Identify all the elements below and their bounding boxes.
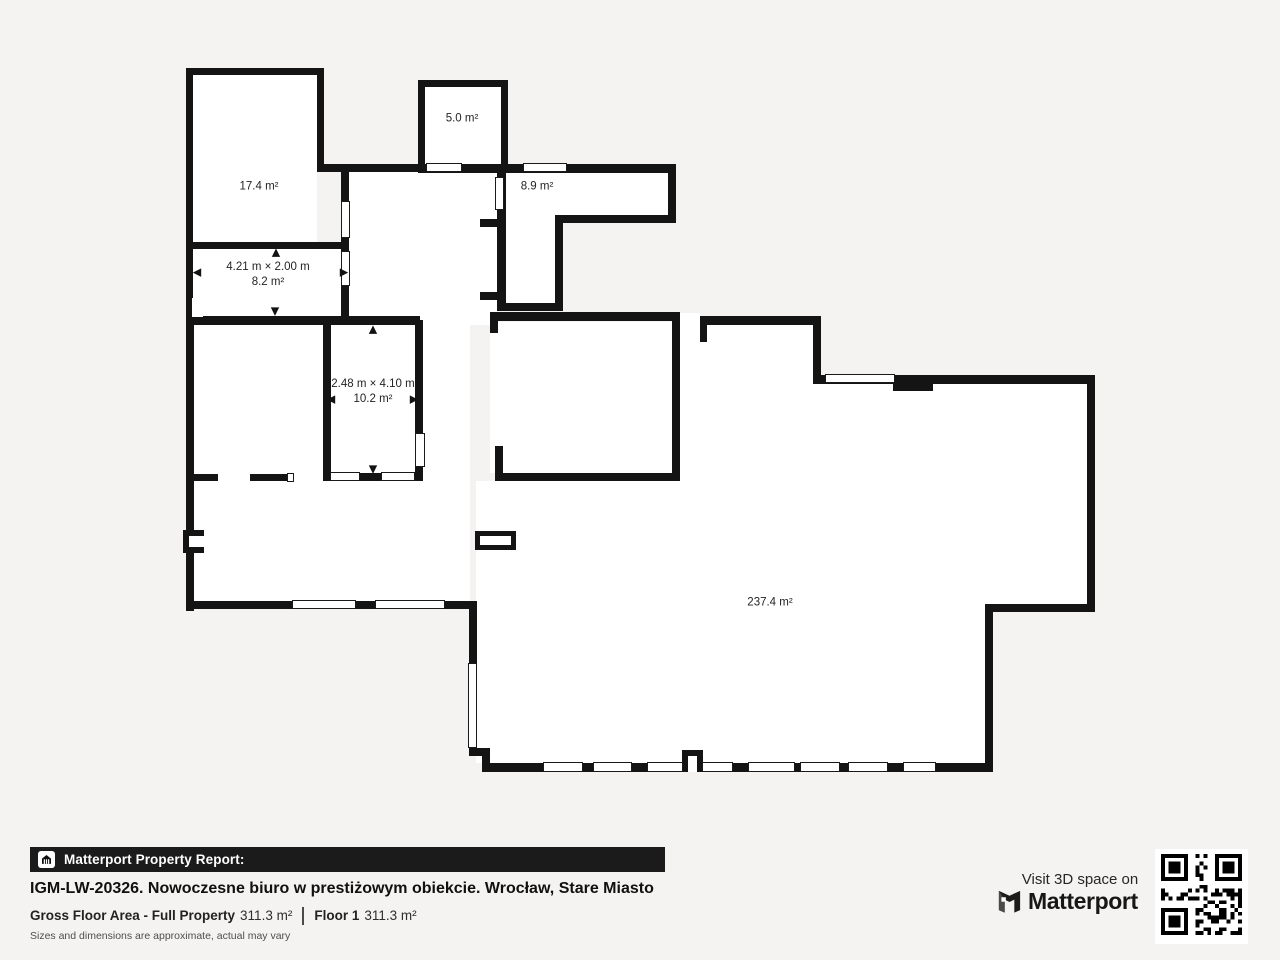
window-marker xyxy=(468,663,477,748)
wall xyxy=(672,313,680,481)
wall xyxy=(186,316,420,325)
room-interior xyxy=(193,75,317,242)
window-marker xyxy=(647,762,683,772)
wall xyxy=(480,292,498,300)
window-marker xyxy=(375,600,445,609)
wall xyxy=(556,215,676,223)
room-interior xyxy=(420,314,490,325)
wall xyxy=(482,748,490,772)
window-marker xyxy=(287,473,294,482)
room-interior xyxy=(194,325,470,601)
wall xyxy=(555,215,563,311)
door-arrow: ▲ xyxy=(369,323,377,334)
wall-recess xyxy=(688,756,697,772)
gross-floor-area-label: Gross Floor Area - Full Property xyxy=(30,908,235,923)
wall-recess xyxy=(192,298,203,317)
window-marker xyxy=(848,762,888,772)
window-marker xyxy=(426,163,462,172)
window-marker xyxy=(702,762,733,772)
wall xyxy=(250,474,287,481)
wall xyxy=(893,384,933,391)
room-interior xyxy=(348,172,497,316)
window-marker xyxy=(495,177,504,210)
window-marker xyxy=(903,762,936,772)
wall xyxy=(985,604,1095,612)
room-interior xyxy=(680,322,813,763)
door-arrow: ▼ xyxy=(271,305,279,316)
wall xyxy=(480,219,498,227)
area-summary: Gross Floor Area - Full Property 311.3 m… xyxy=(30,906,417,925)
wall xyxy=(186,68,193,323)
window-marker xyxy=(523,163,567,172)
visit-3d-text: Visit 3D space on xyxy=(1005,871,1155,888)
report-bar-label: Matterport Property Report: xyxy=(64,852,244,867)
wall xyxy=(186,242,348,249)
wall xyxy=(341,164,349,324)
room-label: 8.9 m² xyxy=(521,180,554,195)
matterport-wordmark: Matterport xyxy=(1028,888,1138,915)
wall xyxy=(1087,375,1095,612)
door-arrow: ▼ xyxy=(369,463,377,474)
matterport-icon xyxy=(996,888,1023,915)
room-label: 5.0 m² xyxy=(446,112,479,127)
wall xyxy=(985,604,993,772)
window-marker xyxy=(341,201,350,238)
floor-label: Floor 1 xyxy=(314,908,359,923)
wall xyxy=(418,80,508,87)
matterport-logo: Matterport xyxy=(996,888,1138,915)
wall xyxy=(186,68,324,75)
room-label: 237.4 m² xyxy=(747,596,792,611)
wall xyxy=(501,80,508,171)
room-label: 4.21 m × 2.00 m8.2 m² xyxy=(226,260,309,290)
room-interior xyxy=(490,322,676,473)
door-arrow: ▶ xyxy=(340,266,348,277)
window-marker xyxy=(593,762,632,772)
room-label: 2.48 m × 4.10 m10.2 m² xyxy=(331,377,414,407)
wall xyxy=(490,312,498,333)
wall xyxy=(186,316,194,611)
wall xyxy=(497,303,563,311)
shaft-box xyxy=(475,531,516,550)
window-marker xyxy=(292,600,356,609)
window-marker xyxy=(800,762,840,772)
floorplan: ▲▼◀▶▲◀▶▼17.4 m²5.0 m²8.9 m²4.21 m × 2.00… xyxy=(0,0,1280,840)
wall xyxy=(193,474,218,481)
window-marker xyxy=(330,472,360,481)
floor-value: 311.3 m² xyxy=(364,908,416,923)
disclaimer: Sizes and dimensions are approximate, ac… xyxy=(30,930,290,942)
window-marker xyxy=(748,762,795,772)
property-report-page: ▲▼◀▶▲◀▶▼17.4 m²5.0 m²8.9 m²4.21 m × 2.00… xyxy=(0,0,1280,960)
room-label: 17.4 m² xyxy=(240,180,279,195)
wall xyxy=(813,316,821,384)
wall xyxy=(490,312,680,321)
wall xyxy=(317,164,425,172)
wall xyxy=(317,68,324,171)
room-interior xyxy=(813,384,1087,604)
qr-code xyxy=(1161,854,1242,940)
wall xyxy=(495,473,680,481)
room-interior xyxy=(476,481,680,763)
property-title: IGM-LW-20326. Nowoczesne biuro w prestiż… xyxy=(30,880,654,898)
gross-floor-area-value: 311.3 m² xyxy=(240,908,292,923)
wall-recess xyxy=(189,536,205,547)
room-interior xyxy=(680,313,700,322)
window-marker xyxy=(543,762,583,772)
house-icon xyxy=(38,851,55,868)
separator xyxy=(302,907,304,925)
wall xyxy=(700,316,821,325)
report-bar: Matterport Property Report: xyxy=(30,847,665,872)
door-arrow: ▲ xyxy=(272,246,280,257)
qr-tile xyxy=(1155,849,1248,944)
door-arrow: ◀ xyxy=(193,266,201,277)
window-marker xyxy=(415,433,425,467)
room-interior xyxy=(813,604,985,763)
window-marker xyxy=(825,374,895,383)
wall xyxy=(418,80,425,171)
window-marker xyxy=(381,472,415,481)
